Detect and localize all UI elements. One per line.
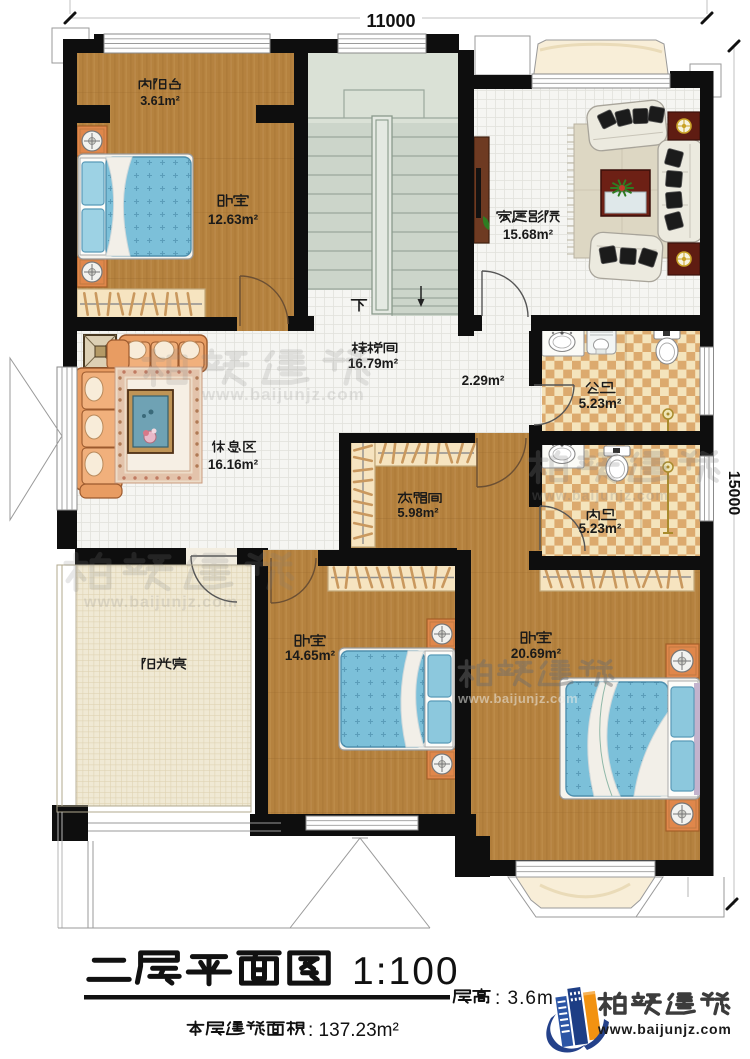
svg-text:15.68m²: 15.68m² (503, 227, 554, 242)
svg-text:www.baijunjz.com: www.baijunjz.com (457, 691, 578, 706)
svg-text:16.16m²: 16.16m² (208, 457, 259, 472)
svg-text:: 3.6m: : 3.6m (495, 988, 554, 1009)
svg-text:5.23m²: 5.23m² (579, 521, 622, 536)
svg-text:3.61m²: 3.61m² (140, 94, 180, 108)
svg-text:15000: 15000 (725, 471, 742, 516)
svg-text:www.baijunjz.com: www.baijunjz.com (597, 1021, 732, 1037)
svg-text:2.29m²: 2.29m² (462, 373, 505, 388)
svg-text:1:100: 1:100 (352, 950, 460, 993)
svg-text:5.23m²: 5.23m² (579, 396, 622, 411)
svg-text:14.65m²: 14.65m² (285, 648, 336, 663)
svg-text:11000: 11000 (366, 11, 415, 31)
svg-text:20.69m²: 20.69m² (511, 646, 562, 661)
svg-text:www.baijunjz.com: www.baijunjz.com (83, 594, 238, 611)
svg-text:www.baijunjz.com: www.baijunjz.com (201, 385, 365, 404)
svg-text:: 137.23m²: : 137.23m² (308, 1020, 399, 1041)
svg-text:5.98m²: 5.98m² (397, 505, 439, 520)
svg-text:www.baijunjz.com: www.baijunjz.com (531, 487, 669, 503)
svg-text:12.63m²: 12.63m² (208, 212, 259, 227)
